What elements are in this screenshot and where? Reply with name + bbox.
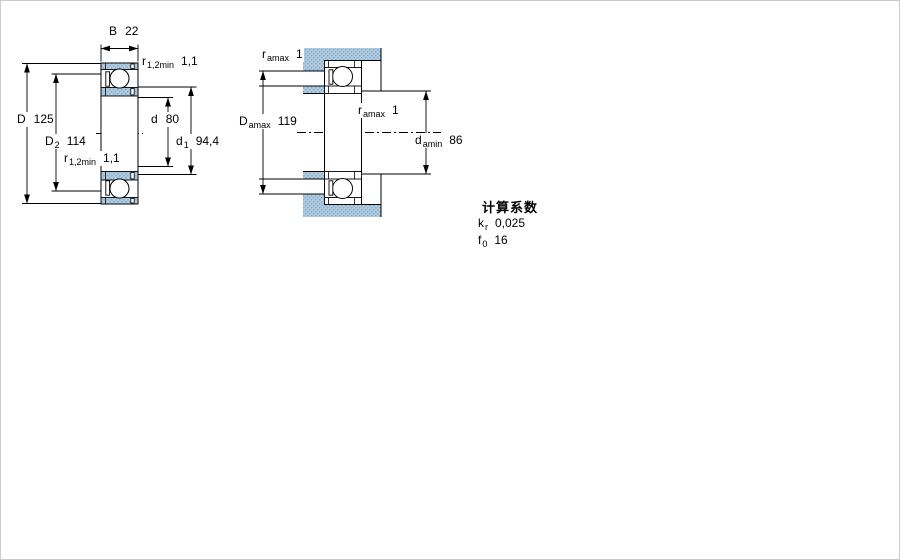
- dim-label-B: B22: [108, 24, 139, 39]
- dim-label-ramax-mid: ramax1: [357, 103, 400, 118]
- factor-row-kr: kr0,025: [478, 216, 525, 230]
- bearing-drawing-page: B22 r1,2min1,1 D125 D2114 d80 d194,4 r1,…: [0, 0, 900, 560]
- dim-label-Damax: Damax119: [238, 114, 298, 129]
- dim-label-r12min-top: r1,2min1,1: [141, 54, 199, 69]
- left-bearing-cross-section: [96, 63, 143, 204]
- factor-row-f0: f016: [478, 233, 508, 247]
- dim-label-d1: d194,4: [175, 134, 220, 149]
- dim-label-ramax-top: ramax1: [261, 47, 304, 62]
- dim-label-d: d80: [150, 112, 180, 127]
- bearing-technical-drawing: [1, 1, 899, 559]
- dim-label-damin: damin86: [414, 133, 464, 148]
- dim-label-r12min-bottom: r1,2min1,1: [63, 151, 121, 166]
- dim-label-D: D125: [16, 112, 55, 127]
- calculation-factors-title: 计算系数: [482, 197, 538, 216]
- dim-label-D2: D2114: [44, 134, 87, 149]
